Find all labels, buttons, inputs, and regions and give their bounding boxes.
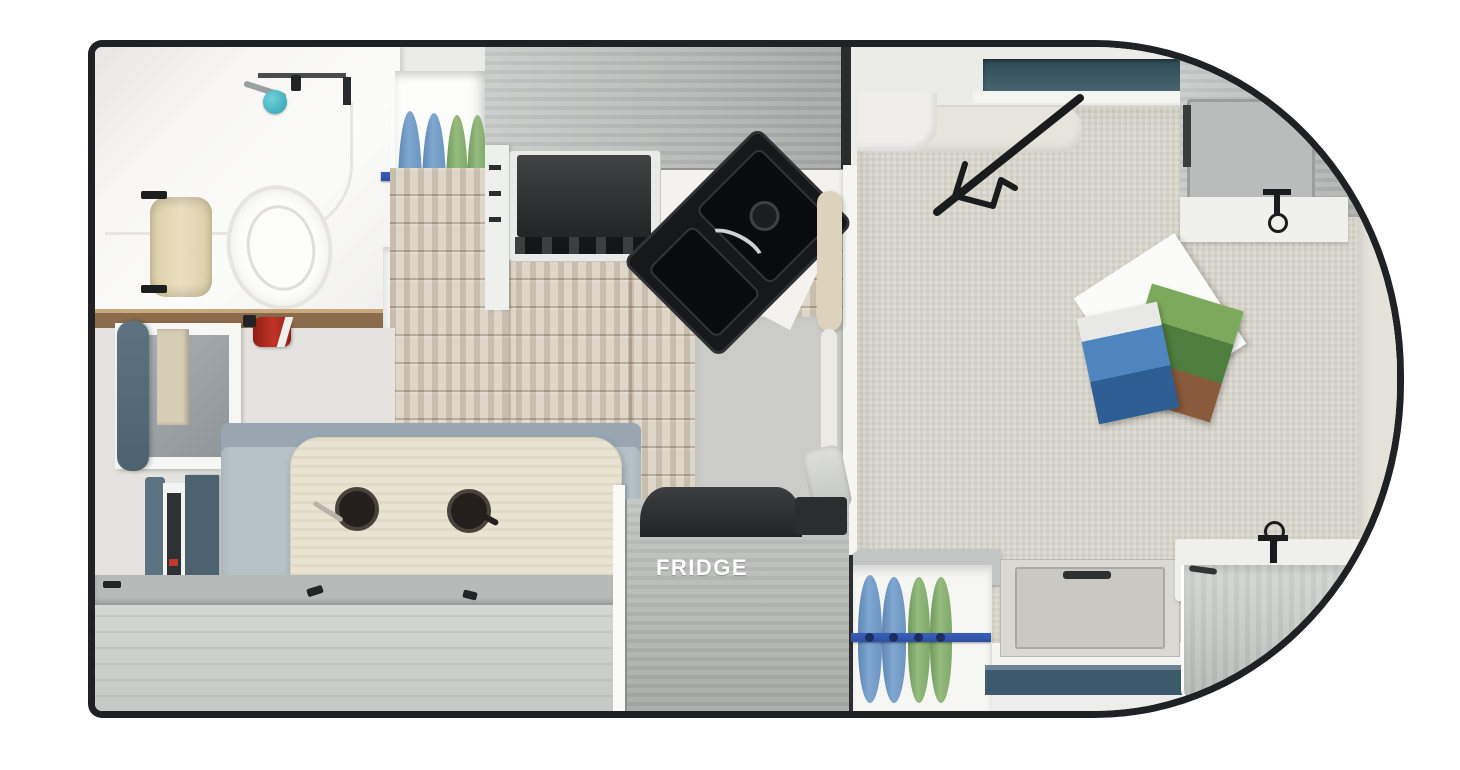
hanger-hook-icon (865, 633, 874, 642)
cup-holder-icon (447, 489, 491, 533)
hanger-hook-icon (914, 633, 923, 642)
range-cooktop (517, 155, 651, 237)
fridge-top-cap (640, 487, 802, 537)
step-teal (985, 665, 1185, 695)
bath-towel (150, 197, 212, 297)
latch-icon (489, 191, 501, 196)
cabinet-door-panel (1187, 99, 1315, 203)
towel-bracket-bottom-icon (141, 285, 167, 293)
hanger-hook-icon (936, 633, 945, 642)
floorplan-canvas: FRIDGE (0, 0, 1460, 770)
underbed-drawer (1015, 567, 1165, 649)
fridge-divider-wall (613, 485, 625, 711)
fridge-label: FRIDGE (635, 555, 769, 581)
window-curtain (157, 329, 189, 425)
drawer-handle-icon (1063, 571, 1111, 579)
fridge-top-cap-side (795, 497, 847, 535)
door-reflector-icon (169, 559, 178, 566)
shower-head-icon (263, 90, 287, 114)
cup-holder-icon (335, 487, 379, 531)
galley-divider-dark (841, 47, 851, 169)
hanger-hook-icon (889, 633, 898, 642)
latch-icon (489, 165, 501, 170)
shower-valve-icon (291, 75, 301, 91)
bed-divider-trim (817, 191, 842, 331)
shower-bracket-icon (343, 77, 351, 105)
coat-hook-icon (1250, 535, 1290, 577)
camper-outline: FRIDGE (88, 40, 1404, 718)
bed-bolster-right (1357, 177, 1404, 567)
towel-bar-icon (258, 73, 346, 78)
door-stop-icon (103, 581, 121, 588)
fire-extinguisher-valve-icon (243, 315, 256, 327)
entry-mat (95, 575, 615, 605)
window-valance-slate (117, 321, 149, 471)
towel-bracket-top-icon (141, 191, 167, 199)
latch-icon (489, 217, 501, 222)
lower-deck (95, 603, 615, 713)
coat-hook-icon (1253, 189, 1293, 229)
